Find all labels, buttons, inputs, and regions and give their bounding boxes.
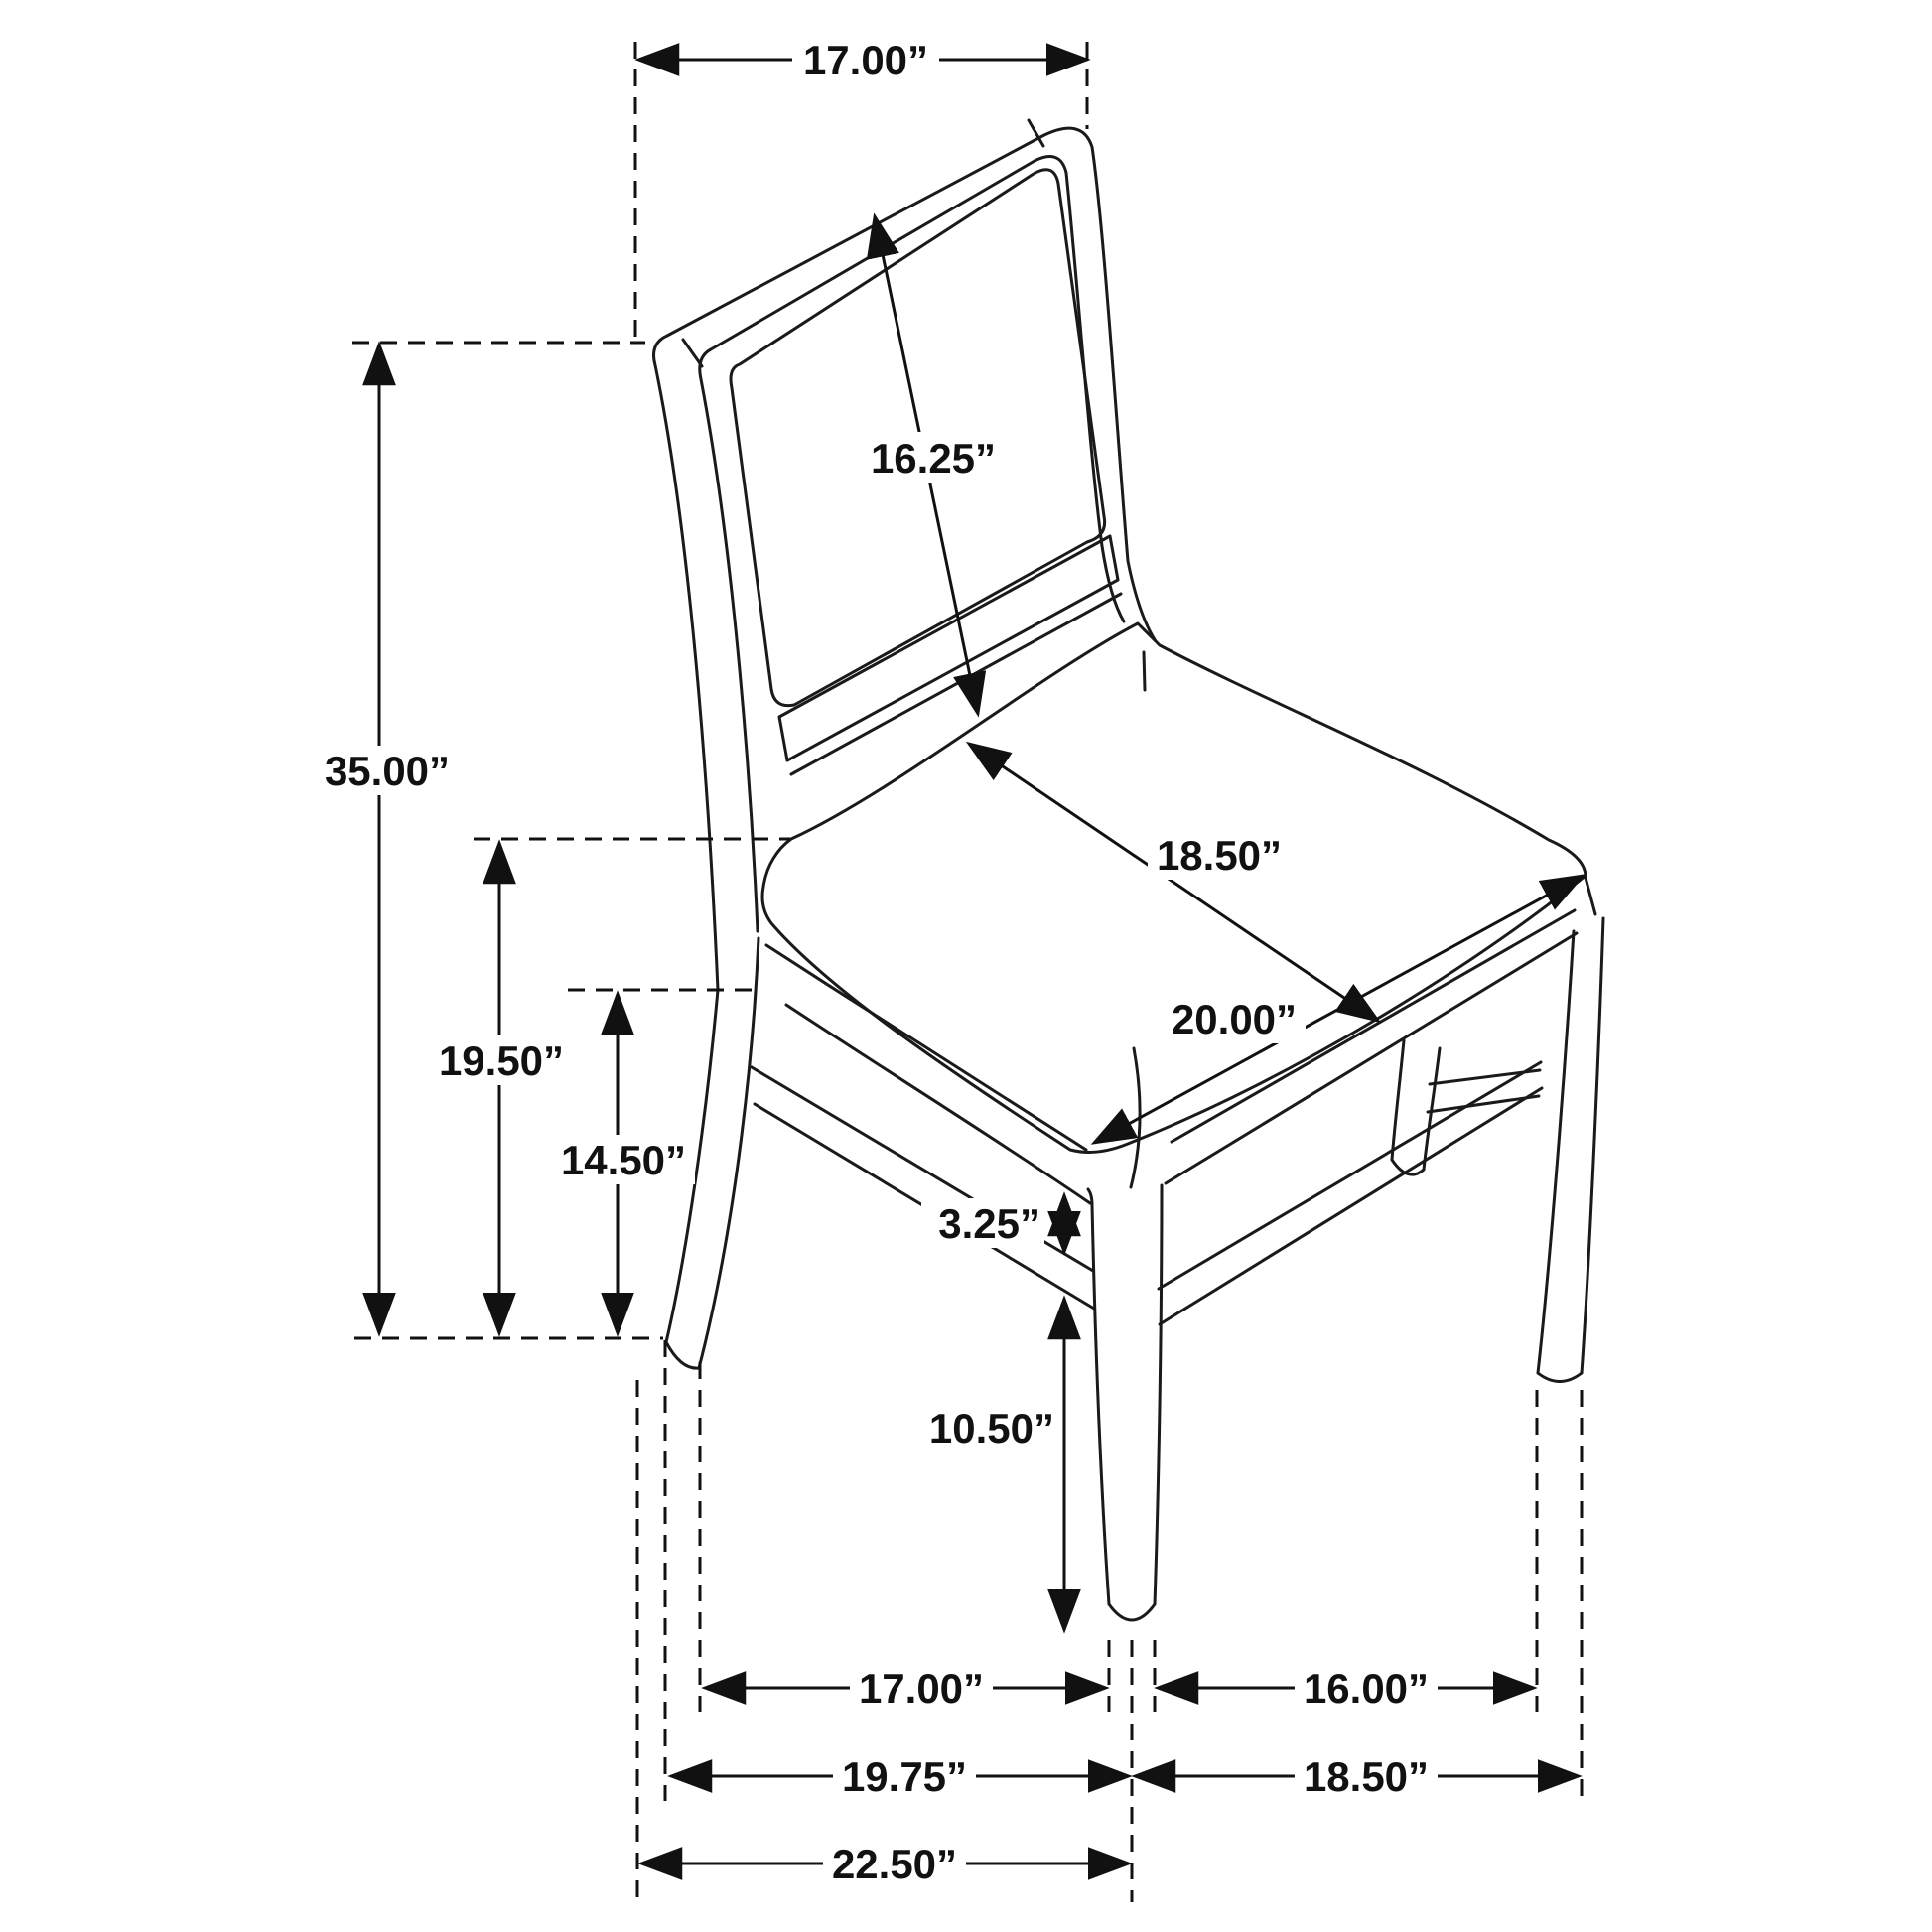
chair-line-art bbox=[654, 120, 1604, 1620]
dim-label-back-panel-length: 16.25” bbox=[871, 435, 996, 482]
dim-label-overall-height: 35.00” bbox=[325, 748, 450, 794]
chair-dimension-diagram: 17.00” 35.00” 19.50” 14.50” 16.25” 18.50… bbox=[0, 0, 1932, 1932]
dim-label-overall-depth: 22.50” bbox=[832, 1841, 957, 1887]
dim-label-stretcher-height: 14.50” bbox=[561, 1137, 686, 1183]
dim-label-front-leg-spacing: 17.00” bbox=[859, 1665, 984, 1712]
front-left-leg bbox=[1088, 1185, 1162, 1620]
dim-label-footprint-depth-right: 18.50” bbox=[1304, 1753, 1429, 1800]
dim-label-back-width: 17.00” bbox=[803, 37, 928, 83]
front-right-leg bbox=[1538, 918, 1603, 1382]
dim-label-side-leg-spacing: 16.00” bbox=[1304, 1665, 1429, 1712]
dim-label-leg-height: 10.50” bbox=[929, 1405, 1054, 1451]
dim-label-rail-stretcher-gap: 3.25” bbox=[938, 1200, 1040, 1247]
dim-label-seat-height: 19.50” bbox=[439, 1037, 564, 1084]
dim-label-footprint-depth-left: 19.75” bbox=[842, 1753, 967, 1800]
dim-label-seat-depth: 18.50” bbox=[1157, 832, 1282, 879]
seat-cushion bbox=[762, 623, 1586, 1152]
frame-seam-ticks bbox=[683, 120, 1043, 366]
chair-dimension-diagram-page: 17.00” 35.00” 19.50” 14.50” 16.25” 18.50… bbox=[0, 0, 1932, 1932]
right-stretcher bbox=[1428, 1070, 1540, 1112]
dim-label-seat-width: 20.00” bbox=[1172, 996, 1297, 1042]
